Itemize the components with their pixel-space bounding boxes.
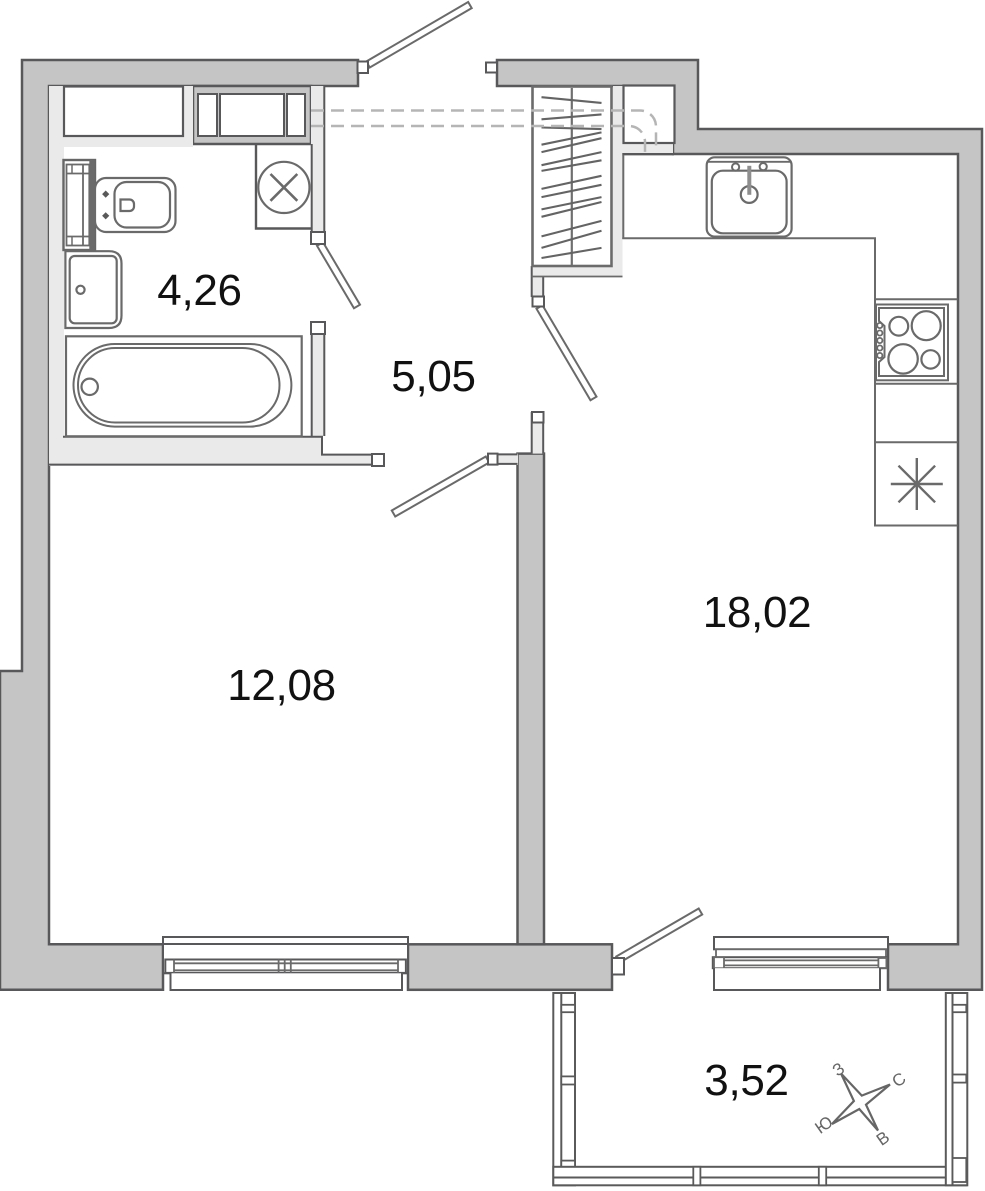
svg-text:4,26: 4,26	[157, 266, 241, 315]
svg-text:18,02: 18,02	[703, 588, 812, 637]
svg-text:Ю: Ю	[812, 1112, 837, 1137]
svg-text:5,05: 5,05	[391, 352, 475, 401]
svg-text:В: В	[873, 1127, 893, 1149]
svg-text:3,52: 3,52	[704, 1056, 788, 1105]
svg-text:12,08: 12,08	[227, 661, 336, 710]
svg-text:С: С	[889, 1069, 910, 1092]
